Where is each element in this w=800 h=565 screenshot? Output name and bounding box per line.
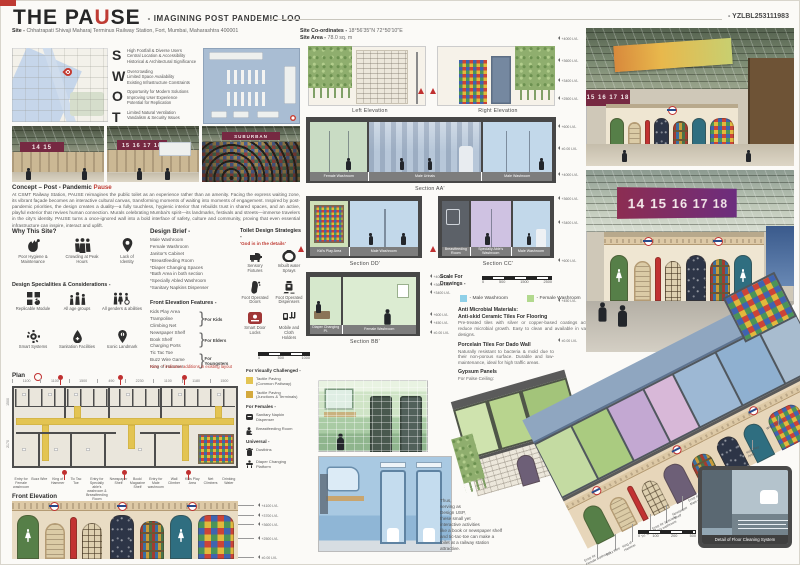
plan-label: Kids Play Area bbox=[183, 477, 201, 501]
person-silhouette bbox=[337, 434, 344, 451]
legend-fem-heading: For Females - bbox=[246, 404, 310, 409]
female-entry-arch bbox=[17, 515, 39, 559]
room-label: Female Washroom bbox=[342, 325, 417, 334]
legend-item-breastfeeding: Breastfeeding Room bbox=[246, 427, 310, 435]
counter bbox=[324, 412, 356, 417]
section-rooms bbox=[442, 201, 550, 247]
person-silhouette bbox=[746, 150, 751, 162]
specialities-heading: Design Specialities & Considerations - bbox=[12, 282, 111, 288]
plan-fixture bbox=[126, 393, 130, 396]
napkin-dispenser-icon bbox=[246, 413, 253, 421]
legend-label: Dustbins bbox=[256, 448, 272, 453]
strategy-label: Foot Operated Doors bbox=[241, 296, 268, 306]
plan-wall bbox=[16, 432, 116, 434]
map-street-grid bbox=[12, 48, 108, 122]
strategy-foot-doors: Foot Operated Doors bbox=[240, 281, 270, 306]
male-entry-arch bbox=[170, 515, 192, 559]
speciality-replicable: Replicable Module bbox=[12, 292, 54, 312]
climbing-wall-arch bbox=[198, 515, 234, 559]
entry-block bbox=[257, 111, 279, 118]
stall-door bbox=[370, 396, 392, 452]
room-label: Male Washroom bbox=[481, 172, 552, 181]
entry-block bbox=[211, 111, 227, 118]
level-marker: ±0.00 LVL bbox=[428, 330, 449, 335]
plan-fixture bbox=[178, 393, 182, 396]
stall-partition bbox=[491, 209, 493, 247]
feature-group: }For Elders bbox=[199, 332, 236, 348]
site-coordinates: Site Co-ordinates - 18°56'35"N 72°50'10"… bbox=[300, 28, 500, 42]
swot-weaknesses: WOvercrowding Limited Space Availability… bbox=[112, 69, 200, 85]
room-label: Diaper Changing Pl. bbox=[310, 325, 342, 334]
strategy-foot-dispensers: Foot Operated Dispensers bbox=[274, 281, 304, 306]
scale-mark: 500 bbox=[499, 280, 505, 284]
inset-caption: Detail of Floor Cleaning System bbox=[702, 535, 788, 544]
level-marker: +4000 LVL bbox=[556, 172, 578, 177]
speciality-label: All genders & abilities bbox=[102, 307, 142, 312]
site-label: Site - bbox=[12, 28, 25, 34]
speciality-landmark: Iconic Landmark bbox=[100, 330, 144, 350]
group-label: For Elders bbox=[205, 338, 227, 343]
speciality-label: Smart Systems bbox=[19, 345, 47, 350]
pole bbox=[416, 52, 418, 104]
front-elevation-heading: Front Elevation bbox=[12, 493, 57, 500]
tactile-path-branch bbox=[74, 406, 81, 418]
room-male bbox=[481, 122, 552, 172]
plan-wall bbox=[70, 432, 72, 466]
feature-group: }For Kids bbox=[199, 311, 236, 327]
plan-fixture bbox=[86, 448, 90, 451]
speciality-sanitation: Sanitation Facilities bbox=[56, 330, 98, 350]
scale-mark: 0 bbox=[258, 356, 260, 360]
plan-legend: For Visually Challenged - Tactile Paving… bbox=[246, 368, 310, 469]
legend-item-tactile-common: Tactile Paving (Common Pathway) bbox=[246, 377, 310, 387]
platform-bars bbox=[227, 70, 267, 84]
plan-wall bbox=[108, 388, 110, 418]
speciality-label: Iconic Landmark bbox=[107, 345, 138, 350]
dim: 1500 bbox=[69, 379, 97, 383]
plan-label: Newspaper Shelf bbox=[109, 477, 129, 501]
room-label: Kid's Play Area bbox=[310, 247, 349, 256]
features-heading: Front Elevation Features - bbox=[150, 300, 217, 306]
swot-letter: T bbox=[112, 110, 123, 124]
kids-play-mosaic bbox=[198, 434, 234, 464]
dim: 1100 bbox=[40, 379, 68, 383]
plan-fixture bbox=[22, 393, 26, 396]
station-layout-diagram bbox=[203, 48, 300, 124]
person-silhouette bbox=[427, 158, 432, 170]
legend-male-washroom: - Male Washroom bbox=[460, 295, 508, 302]
plan-wall bbox=[160, 388, 162, 418]
scale-mark: 1000 bbox=[302, 356, 310, 360]
toilet-fixture bbox=[387, 528, 399, 542]
tic-tac-toe-arch bbox=[82, 523, 102, 559]
facade-arch bbox=[634, 261, 651, 301]
section-dd-drawing: Kid's Play Area Male Washroom bbox=[306, 196, 422, 258]
scale-mark: 100 bbox=[652, 534, 658, 538]
tactile-path-branch bbox=[128, 425, 135, 449]
stall-partition bbox=[506, 131, 508, 172]
dispenser-icon bbox=[283, 281, 295, 294]
dustbin-icon bbox=[246, 448, 253, 456]
room-kids-play bbox=[310, 201, 348, 247]
coords-label: Site Co-ordinates - bbox=[300, 28, 347, 34]
why-item-identity: Lack of Identity bbox=[110, 238, 144, 265]
tactile-path-main bbox=[16, 418, 234, 425]
dim: 1100 bbox=[153, 379, 181, 383]
site-location-map bbox=[12, 48, 108, 122]
site-photo-concourse-1: 14 15 bbox=[12, 126, 104, 182]
section-cc-drawing: Breastfeeding Room Specially Able's Wash… bbox=[438, 196, 554, 258]
room-male bbox=[348, 201, 418, 247]
strategy-label: Sensory Fixtures bbox=[240, 264, 270, 274]
axon-callout: King of Hammer bbox=[622, 540, 637, 552]
male-color-swatch bbox=[460, 295, 467, 302]
toilet-fixture bbox=[423, 528, 435, 542]
person-silhouette bbox=[26, 168, 31, 180]
stall-door-open bbox=[380, 470, 406, 544]
roundel-icon bbox=[118, 502, 127, 511]
red-section-marker bbox=[298, 246, 304, 252]
mirror bbox=[326, 390, 352, 408]
render-male-washroom bbox=[318, 456, 452, 552]
area-value: 78.0 sq. m bbox=[328, 35, 353, 41]
section-bb-drawing: Diaper Changing Pl. Female Washroom bbox=[306, 272, 420, 336]
person-silhouette bbox=[384, 309, 391, 325]
strategy-label: Foot Operated Dispensers bbox=[275, 296, 302, 306]
level-marker: +450 LVL bbox=[556, 298, 576, 303]
female-figure-icon bbox=[25, 529, 31, 542]
why-item-hygiene: Poor Hygiene & Maintenance bbox=[12, 238, 54, 265]
roundel-icon bbox=[714, 237, 723, 246]
all-genders-icon bbox=[113, 292, 131, 305]
floor-plan-drawing bbox=[12, 386, 238, 468]
level-marker: +2500 LVL bbox=[556, 96, 578, 101]
plan-heading: Plan bbox=[12, 372, 25, 379]
speciality-ages: All age groups bbox=[56, 292, 98, 312]
concept-heading: Concept – Post - Pandemic Pause bbox=[12, 184, 112, 191]
legend-item-dustbin: Dustbins bbox=[246, 448, 310, 456]
legend-item-diaper: Diaper Changing Platform bbox=[246, 460, 310, 470]
mural-arch bbox=[110, 515, 134, 559]
smart-gear-icon bbox=[27, 330, 40, 343]
design-usp-text: Thus, serving as Design USP, these small… bbox=[440, 498, 504, 552]
tactile-path-branch bbox=[42, 425, 49, 461]
level-marker: +3600 LVL bbox=[256, 522, 278, 527]
banner-sign: SUBURBAN bbox=[222, 132, 280, 140]
plan-wall bbox=[38, 432, 40, 466]
brief-list: Male Washroom Female Washroom Janitor's … bbox=[150, 237, 234, 292]
facade-arch bbox=[655, 257, 661, 301]
level-marker: +600 LVL bbox=[556, 258, 576, 263]
room-label: Male Washroom bbox=[349, 247, 418, 256]
level-marker: +4100 LVL bbox=[256, 503, 278, 508]
legend-item-napkin: Sanitary Napkin Dispenser bbox=[246, 413, 310, 423]
section-dd-caption: Section DD' bbox=[325, 261, 405, 267]
scale-drawings-bar: 0 500 1500 2500 bbox=[482, 276, 552, 284]
plan-label: Wall Climber bbox=[165, 477, 183, 501]
swot-text: High Footfall & Diverse Users Central Lo… bbox=[127, 48, 196, 64]
why-site-heading: Why This Site? bbox=[12, 228, 56, 235]
swot-letter: W bbox=[112, 69, 123, 85]
person-silhouette bbox=[368, 233, 373, 245]
level-marker: +3400 LVL bbox=[556, 78, 578, 83]
strategy-spray: Inbuilt water Sprays bbox=[274, 250, 304, 274]
person-silhouette bbox=[599, 302, 607, 321]
facade-arch bbox=[610, 255, 628, 301]
identity-pin-icon bbox=[121, 238, 134, 253]
plan-wall bbox=[140, 432, 180, 434]
room-female bbox=[310, 122, 367, 172]
platform-block bbox=[209, 52, 263, 60]
wall-sign bbox=[446, 209, 460, 225]
features-note: Note - * indicates additions in existing… bbox=[150, 364, 238, 369]
plan-scale-bar: 0 500 1000 bbox=[258, 352, 310, 360]
title-pre: THE PA bbox=[13, 6, 94, 29]
window bbox=[398, 285, 408, 297]
section-rooms bbox=[310, 122, 552, 172]
plan-stall-row bbox=[15, 389, 235, 407]
section-cc-caption: Section CC' bbox=[458, 261, 538, 267]
why-item-label: Poor Hygiene & Maintenance bbox=[18, 255, 47, 265]
legend-item-tactile-junction: Tactile Paving (Junctions & Terminals) bbox=[246, 391, 310, 401]
photo-floor bbox=[586, 144, 794, 166]
concept-body: At CSMT Railway Station, PAUSE reimagine… bbox=[12, 192, 300, 229]
faucet-icon bbox=[248, 250, 262, 262]
speciality-genders: All genders & abilities bbox=[100, 292, 144, 312]
photo-floor bbox=[107, 173, 199, 182]
room-urinals-mural bbox=[367, 122, 481, 172]
why-site-icons: Poor Hygiene & Maintenance Crowding at P… bbox=[12, 238, 144, 265]
level-leader bbox=[238, 524, 254, 525]
coords-value: 18°56'35"N 72°50'10"E bbox=[349, 28, 403, 34]
platform-bars bbox=[227, 92, 267, 106]
swot-letter: O bbox=[112, 89, 123, 105]
stall-partition bbox=[529, 131, 531, 172]
room-label: Breastfeeding Room bbox=[442, 247, 470, 256]
vent-window bbox=[416, 462, 442, 468]
room-label: Male Urinals bbox=[368, 172, 482, 181]
newspaper-shelf-arch bbox=[45, 523, 65, 559]
person-silhouette bbox=[618, 305, 627, 327]
red-section-marker bbox=[430, 88, 436, 94]
plan-label: Tic Tac Toe bbox=[67, 477, 85, 501]
strategy-label: Smart Door Locks bbox=[240, 326, 270, 336]
swot-text: Limited Natural Ventilation Vandalism & … bbox=[127, 110, 180, 124]
vent-window bbox=[380, 462, 406, 468]
plan-dim-left: 2170 bbox=[6, 440, 10, 448]
roundel-icon bbox=[188, 502, 197, 511]
title-accent: U bbox=[94, 6, 110, 29]
kids-mural bbox=[314, 205, 344, 243]
plan-label: Entry for Specially able's washroom & Br… bbox=[85, 477, 109, 501]
strategy-label: Mobile and Cloth Holders bbox=[274, 326, 304, 340]
plan-label: Entry for Male washroom bbox=[147, 477, 165, 501]
level-leader bbox=[238, 538, 254, 539]
roundel-icon bbox=[668, 106, 677, 115]
brief-heading: Design Brief - bbox=[150, 228, 190, 235]
features-list: Kids Play Area Trampoline Climbing Net N… bbox=[150, 309, 199, 371]
street-sketch-mural bbox=[356, 50, 408, 104]
level-marker: +600 LVL bbox=[556, 124, 576, 129]
section-label-band: Breastfeeding Room Specially Able's Wash… bbox=[442, 247, 550, 256]
inset-toilet bbox=[760, 490, 778, 504]
entry-block bbox=[233, 111, 249, 118]
legend-label: Tactile Paving (Common Pathway) bbox=[256, 377, 291, 387]
legend-vis-heading: For Visually Challenged - bbox=[246, 368, 310, 373]
level-marker: +3600 LVL bbox=[556, 196, 578, 201]
section-aa-caption: Section AA' bbox=[390, 186, 470, 192]
facade-arch bbox=[710, 259, 730, 301]
inset-note-line bbox=[738, 528, 792, 529]
foot-icon bbox=[250, 281, 261, 294]
presentation-board: THE PAUSE- IMAGINING POST PANDEMIC LOO -… bbox=[0, 0, 800, 565]
section-cut-marker bbox=[186, 470, 191, 475]
room-breastfeeding bbox=[442, 201, 469, 247]
water-drop-icon bbox=[72, 330, 83, 343]
diaper-platform-icon bbox=[246, 460, 253, 468]
strategy-label: Inbuilt water Sprays bbox=[274, 264, 304, 274]
scale-mark: 0 bbox=[638, 534, 640, 538]
room-specially-abled bbox=[469, 201, 511, 247]
swot-analysis: SHigh Footfall & Diverse Users Central L… bbox=[112, 48, 200, 124]
legend-label: Diaper Changing Platform bbox=[256, 460, 286, 470]
section-aa-drawing: Female Washroom Male Urinals Male Washro… bbox=[306, 117, 556, 183]
scale-mark: 2500 bbox=[544, 280, 552, 284]
plan-dimensions-top: 1100110015004902230110011801500 bbox=[12, 379, 238, 383]
right-elevation-caption: Right Elevation bbox=[458, 108, 538, 114]
level-marker: +3700 LVL bbox=[256, 513, 278, 518]
section-bb-caption: Section BB' bbox=[325, 339, 405, 345]
swot-opportunities: OOpportunity for Modern Solutions Improv… bbox=[112, 89, 200, 105]
plan-fixture bbox=[48, 393, 52, 396]
plan-label: Net Climbers bbox=[201, 477, 219, 501]
section-label-band: Kid's Play Area Male Washroom bbox=[310, 247, 418, 256]
header-rule bbox=[270, 19, 722, 20]
counter bbox=[326, 496, 364, 501]
plan-label: Drinking Water bbox=[220, 477, 238, 501]
plan-dim-left: 1500 bbox=[6, 398, 10, 406]
scale-mark: 0 bbox=[482, 280, 484, 284]
occupied-sign-icon bbox=[248, 312, 262, 324]
hooks-icon bbox=[282, 312, 296, 324]
plan-fixture bbox=[22, 448, 26, 451]
speciality-label: Replicable Module bbox=[16, 307, 50, 312]
why-item-crowding: Crowding at Peak Hours bbox=[60, 238, 104, 265]
room-diaper bbox=[310, 277, 341, 325]
platform-number-sign: 14 15 16 17 18 bbox=[617, 187, 737, 219]
axon-scale-bar: 0 100 200 500 bbox=[638, 530, 696, 538]
person-silhouette bbox=[165, 168, 170, 180]
swot-text: Opportunity for Modern Solutions Improvi… bbox=[127, 89, 188, 105]
yellow-swatch-dark bbox=[246, 391, 253, 398]
crowd-texture bbox=[202, 142, 300, 182]
section-cut-marker bbox=[118, 375, 123, 380]
bookshelf-arch bbox=[140, 521, 164, 559]
person-silhouette bbox=[622, 150, 627, 162]
level-marker: +3400 LVL bbox=[556, 220, 578, 225]
group-label: For Kids bbox=[205, 317, 223, 322]
level-marker: ±0.00 LVL bbox=[556, 338, 577, 343]
scale-marks: 0 500 1000 bbox=[258, 356, 310, 360]
plan-wall bbox=[64, 388, 66, 418]
axon-arch bbox=[515, 453, 541, 487]
site-photo-concourse-2: 15 16 17 18 bbox=[107, 126, 199, 182]
room-label: Female Washroom bbox=[310, 172, 368, 181]
legend-uni-heading: Universal - bbox=[246, 439, 310, 444]
concept-heading-accent: Pause bbox=[94, 184, 112, 191]
wooden-gallery bbox=[748, 58, 794, 144]
scale-mark: 500 bbox=[278, 356, 284, 360]
entry-code: - YZLBL253111983 bbox=[728, 13, 789, 20]
section-cut-marker bbox=[62, 470, 67, 475]
front-elevation-drawing bbox=[12, 501, 238, 559]
ivy-green-wall bbox=[308, 46, 352, 88]
legend-label: Tactile Paving (Junctions & Terminals) bbox=[256, 391, 298, 401]
king-of-hammer bbox=[70, 517, 77, 559]
person-silhouette bbox=[346, 158, 351, 170]
room-label: Specially Able's Washroom bbox=[470, 247, 511, 256]
strategy-holders: Mobile and Cloth Holders bbox=[274, 312, 304, 340]
plan-wall bbox=[104, 432, 106, 466]
breastfeeding-icon bbox=[246, 427, 253, 435]
inset-note-line bbox=[738, 524, 786, 525]
dim: 2230 bbox=[125, 379, 153, 383]
plan-fixture bbox=[138, 448, 142, 451]
specialities-row-2: Smart Systems Sanitation Facilities Icon… bbox=[12, 330, 144, 350]
person-silhouette bbox=[137, 168, 142, 180]
page-title: THE PAUSE- IMAGINING POST PANDEMIC LOO bbox=[13, 6, 301, 30]
female-figure-icon bbox=[616, 269, 622, 282]
left-elevation-caption: Left Elevation bbox=[330, 108, 410, 114]
plan-fixture bbox=[74, 393, 78, 396]
left-elevation-drawing bbox=[308, 46, 426, 106]
level-marker: +600 LVL bbox=[428, 312, 448, 317]
speciality-smart: Smart Systems bbox=[12, 330, 54, 350]
stall-door-open bbox=[416, 470, 442, 544]
concourse-block bbox=[284, 66, 296, 104]
urinal-fixture bbox=[459, 146, 473, 172]
person-silhouette bbox=[316, 301, 321, 313]
female-color-swatch bbox=[527, 295, 534, 302]
level-marker: +3600 LVL bbox=[556, 58, 578, 63]
section-cut-marker bbox=[182, 375, 187, 380]
strategies-heading: Toilet Design Strategies - bbox=[240, 228, 304, 241]
person-silhouette bbox=[82, 168, 87, 180]
swot-letter: S bbox=[112, 48, 123, 64]
person-silhouette bbox=[401, 233, 406, 245]
area-label: Site Area - bbox=[300, 35, 326, 41]
facade-arch bbox=[665, 261, 681, 301]
person-silhouette bbox=[485, 233, 490, 245]
swot-text: Overcrowding Limited Space Availability … bbox=[127, 69, 190, 85]
roundel-icon bbox=[644, 237, 653, 246]
right-elevation-drawing bbox=[437, 46, 555, 106]
level-leader bbox=[238, 505, 254, 506]
site-value: Chhatrapati Shivaji Maharaj Terminus Rai… bbox=[26, 28, 238, 34]
section-label-band: Diaper Changing Pl. Female Washroom bbox=[310, 325, 416, 334]
section-cut-marker bbox=[122, 470, 127, 475]
toilet-seat-icon bbox=[282, 250, 296, 262]
facade-arch bbox=[686, 255, 706, 301]
tactile-path-branch bbox=[215, 406, 222, 418]
strategy-sensory: Sensory Fixtures bbox=[240, 250, 270, 274]
module-icon bbox=[27, 292, 40, 305]
level-marker: +450 LVL bbox=[428, 320, 448, 325]
clothes-hooks bbox=[320, 474, 328, 514]
material-1-body: Pre-treated tiles with silver or copper-… bbox=[458, 320, 596, 338]
scale-marks: 0 100 200 500 bbox=[638, 534, 696, 538]
hygiene-hand-icon bbox=[26, 238, 41, 253]
